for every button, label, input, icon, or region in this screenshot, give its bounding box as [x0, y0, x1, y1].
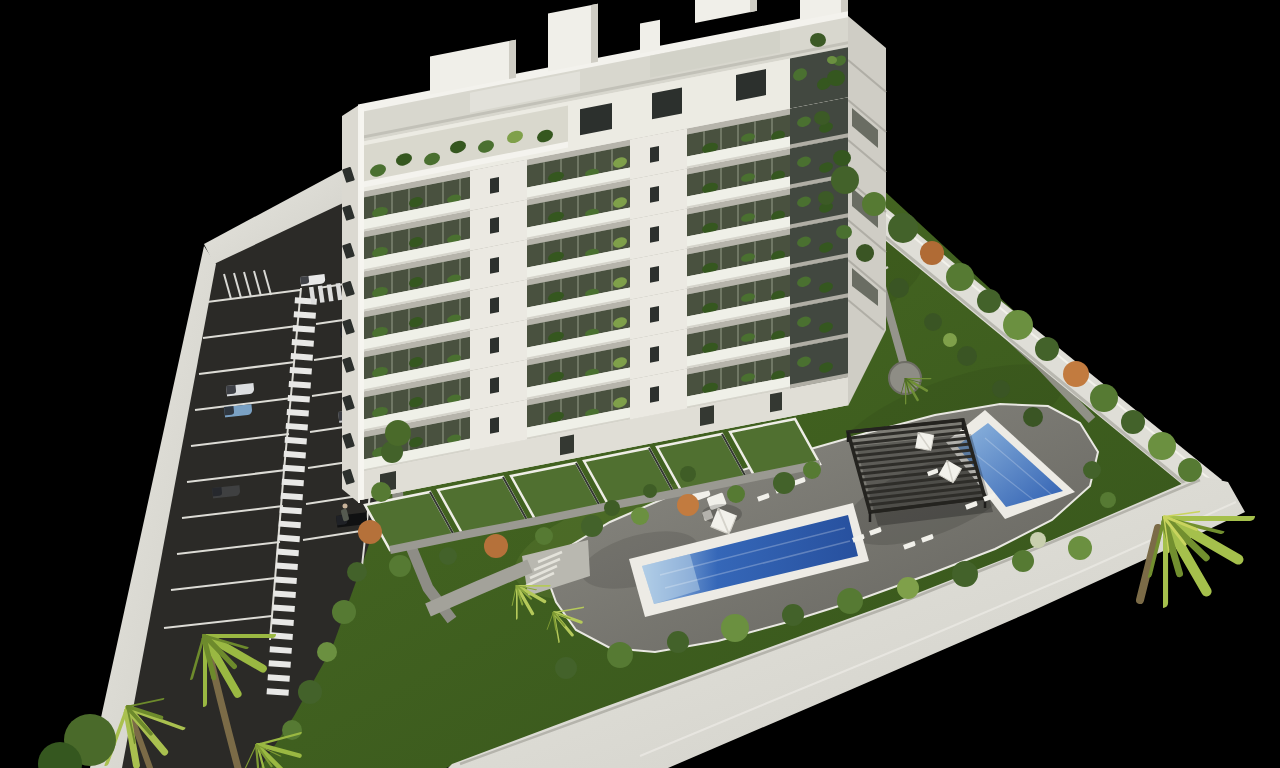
render-stage [0, 0, 1280, 768]
architectural-render [0, 0, 1280, 768]
building-left-face [342, 105, 359, 503]
